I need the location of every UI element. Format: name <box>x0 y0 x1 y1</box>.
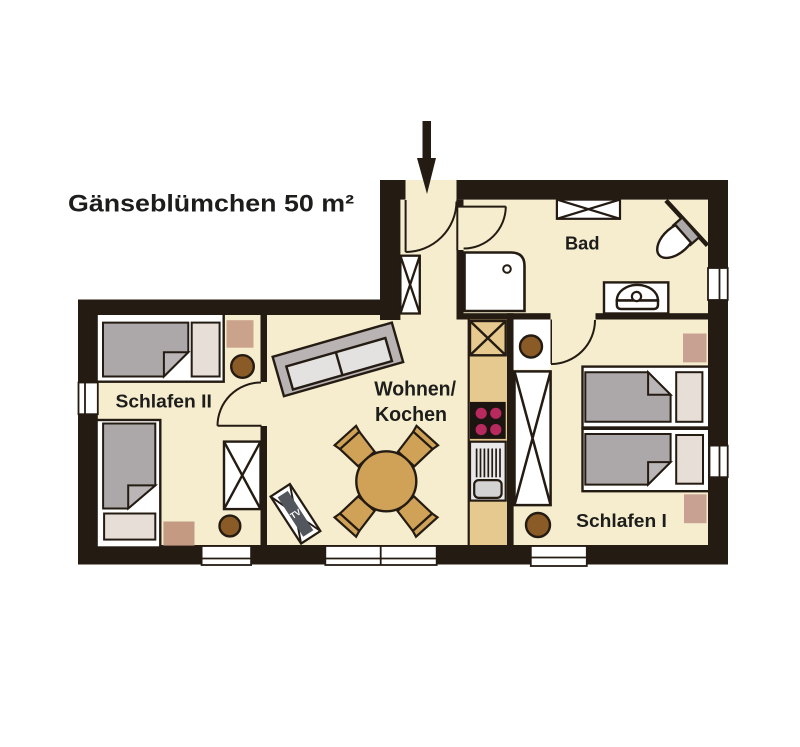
svg-text:Kochen: Kochen <box>375 403 447 426</box>
svg-text:Schlafen II: Schlafen II <box>116 391 212 412</box>
svg-text:Wohnen/: Wohnen/ <box>374 378 456 401</box>
svg-text:Schlafen I: Schlafen I <box>576 510 667 531</box>
svg-text:Gänseblümchen 50 m²: Gänseblümchen 50 m² <box>68 190 354 217</box>
svg-text:Bad: Bad <box>565 232 600 253</box>
